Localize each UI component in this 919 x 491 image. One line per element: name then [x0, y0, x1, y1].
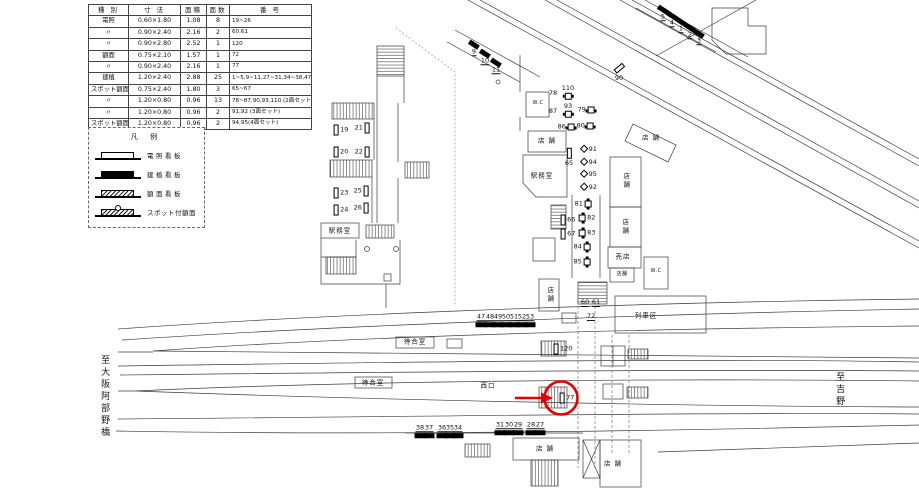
- map-label: 店舗: [620, 219, 627, 236]
- map-label: 待合室: [362, 379, 385, 386]
- room-labels: W.C店 舗駅務室店舗店舗売店W.C店 舗店舗店舗列車区待合室待合室西口店 舗店…: [0, 0, 919, 491]
- map-label: W.C: [651, 269, 662, 275]
- map-label: 至吉野: [834, 372, 844, 408]
- map-label: 列車区: [635, 312, 658, 319]
- map-label: W.C: [533, 101, 544, 107]
- map-label: 駅務室: [531, 172, 554, 179]
- map-label: 店 舗: [536, 445, 554, 452]
- map-label: 待合室: [404, 338, 427, 345]
- map-label: 駅務室: [329, 227, 352, 234]
- map-label: 至大阪阿部野橋: [99, 355, 109, 439]
- map-label: 店舗: [545, 287, 552, 304]
- map-label: 売店: [616, 253, 631, 260]
- map-label: 店舗: [621, 173, 628, 190]
- map-label: 店 舗: [538, 137, 556, 144]
- map-label: 店 舗: [642, 134, 660, 141]
- map-label: 西口: [481, 382, 496, 389]
- map-label: 店 舗: [604, 460, 622, 467]
- map-label: 店舗: [616, 272, 627, 278]
- station-sign-layout-drawing: 種 別寸 法面積面数番 号 電照0.60×1.801.08819~26〃0.90…: [0, 0, 919, 491]
